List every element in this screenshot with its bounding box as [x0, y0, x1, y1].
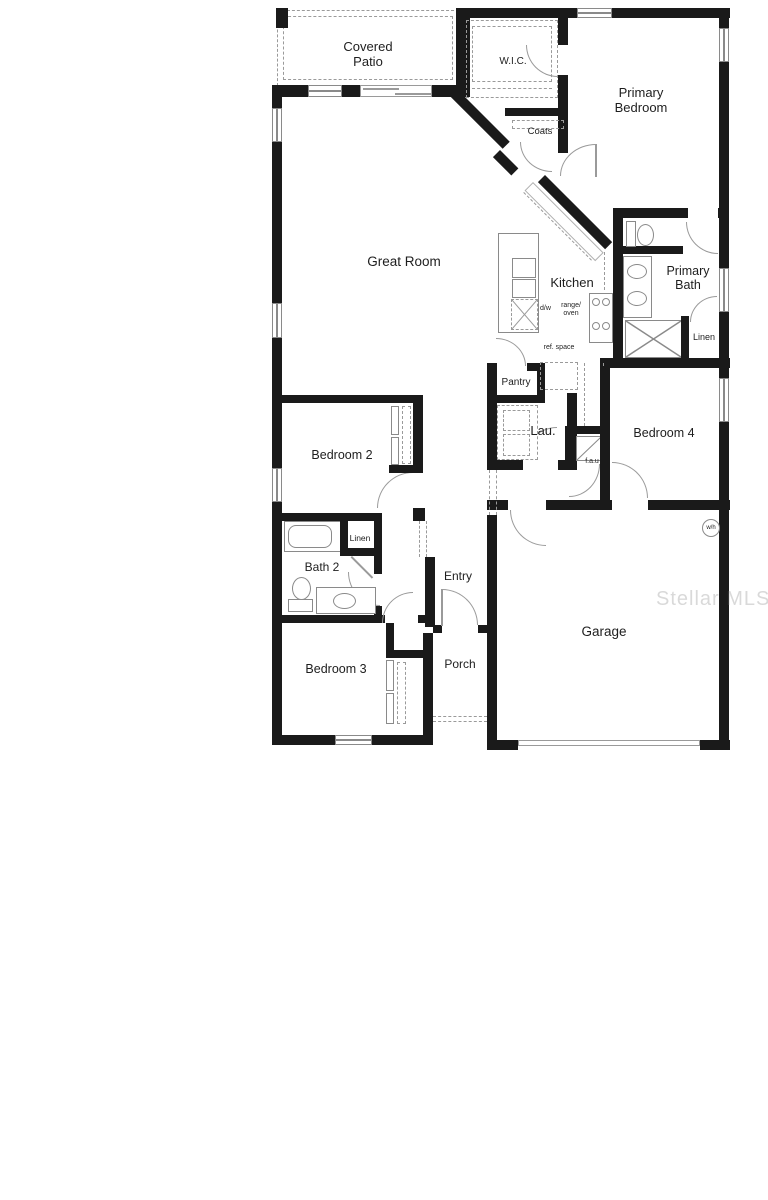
room-label-bedroom4: Bedroom 4 [614, 426, 714, 440]
wall-segment [456, 8, 577, 18]
room-label-entry: Entry [431, 570, 485, 584]
closet-bypass-door [386, 693, 394, 724]
room-label-primary-bath: Primary Bath [657, 264, 719, 293]
wall-segment [700, 740, 730, 750]
window [272, 468, 282, 502]
room-label-kitchen: Kitchen [541, 276, 603, 291]
wall-segment [272, 142, 282, 303]
wall-segment [719, 422, 729, 750]
bedroom4-door-arc [612, 462, 648, 498]
bathtub-basin [288, 525, 332, 548]
room-label-laundry: Lau. [522, 424, 564, 439]
window [308, 85, 342, 97]
wall-segment [613, 216, 623, 358]
room-label-great-room: Great Room [354, 254, 454, 270]
room-label-coats: Coats [518, 127, 562, 138]
wall-segment [272, 502, 282, 745]
burner [592, 322, 600, 330]
garage-door [518, 740, 700, 746]
wall-segment [546, 500, 612, 510]
wall-segment [648, 500, 730, 510]
closet-bypass-door [391, 406, 399, 435]
garage-entry-door-arc [510, 510, 546, 546]
burner [602, 322, 610, 330]
room-label-wic: W.I.C. [490, 56, 536, 68]
window [577, 8, 612, 18]
burner [602, 298, 610, 306]
wall-segment [600, 358, 730, 368]
window [335, 735, 372, 745]
closet-bypass-door [391, 437, 399, 465]
wall-segment [478, 625, 497, 633]
wall-segment [272, 85, 308, 97]
wall-segment-diagonal [493, 150, 518, 175]
room-label-bedroom3: Bedroom 3 [286, 662, 386, 676]
label-range-oven: range/ oven [555, 302, 587, 318]
window [272, 108, 282, 142]
wall-segment [565, 426, 573, 464]
wall-segment [386, 650, 425, 658]
closet-rod [402, 406, 411, 464]
wall-segment [487, 740, 518, 750]
room-label-garage: Garage [559, 624, 649, 640]
pantry-door-arc [496, 338, 526, 366]
toilet-bowl [637, 224, 654, 246]
refrigerator-space [540, 362, 578, 390]
wall-segment [282, 395, 423, 403]
wall-segment [558, 18, 568, 45]
fau-door-arc [569, 464, 600, 497]
wall-segment [623, 246, 683, 254]
room-label-bath2: Bath 2 [292, 561, 352, 575]
closet-bypass-door [386, 660, 394, 691]
front-door-leaf [441, 589, 443, 626]
room-label-pantry: Pantry [494, 377, 538, 389]
wic-rod [472, 88, 552, 89]
wall-segment [374, 513, 382, 574]
sink [333, 593, 356, 609]
island-sink [512, 279, 536, 298]
room-label-covered-patio: Covered Patio [330, 40, 406, 70]
wall-segment [272, 338, 282, 468]
sink [627, 264, 647, 279]
floor-plan-page: w/h Covered Patio W.I.C. Primary Bedroom… [0, 0, 768, 1200]
wall-segment [425, 557, 435, 627]
wall-segment [719, 312, 729, 378]
wall-segment [719, 8, 729, 28]
room-label-linen-primary: Linen [686, 332, 722, 342]
wall-segment [276, 8, 288, 28]
porch-edge-dash [433, 716, 487, 717]
wall-segment [372, 735, 427, 745]
primary-bedroom-door-leaf [595, 144, 597, 177]
toilet [288, 599, 313, 612]
sink [627, 291, 647, 306]
toilet [626, 221, 636, 247]
wall-segment [612, 8, 730, 18]
linen-door-arc [690, 296, 717, 322]
window [719, 268, 729, 312]
wall-segment [282, 513, 382, 521]
coats-door-arc [520, 142, 552, 172]
shower [625, 320, 682, 358]
window [719, 378, 729, 422]
bedroom3-door-arc [382, 592, 413, 623]
wall-segment [272, 735, 335, 745]
water-heater-label: w/h [706, 525, 715, 531]
cased-opening [496, 470, 497, 515]
wall-segment [413, 395, 423, 472]
counter-edge-dash [604, 252, 605, 290]
wall-segment [413, 508, 425, 521]
wall-segment [600, 368, 610, 500]
cased-opening [489, 470, 490, 515]
wall-segment [423, 633, 433, 745]
island-sink [512, 258, 536, 278]
sliding-glass-door [360, 85, 432, 97]
wall-segment [719, 62, 729, 268]
window [272, 303, 282, 338]
primary-bath-door-arc [686, 222, 718, 254]
window [719, 28, 729, 62]
room-label-porch: Porch [432, 658, 488, 672]
dishwasher [511, 299, 538, 330]
bedroom2-door-arc [377, 472, 413, 508]
wall-segment [389, 465, 423, 473]
porch-edge-dash [433, 721, 487, 722]
burner [592, 298, 600, 306]
wall-segment [613, 208, 688, 218]
room-label-bedroom2: Bedroom 2 [292, 448, 392, 462]
wall-segment [505, 108, 567, 116]
closet-rod [397, 662, 406, 724]
water-heater: w/h [702, 519, 720, 537]
front-door-arc [442, 589, 478, 625]
label-fau: f.a.u [578, 458, 606, 466]
cased-opening [419, 521, 420, 557]
wall-segment [342, 85, 360, 97]
label-ref-space: ref. space [541, 344, 577, 352]
room-label-primary-bedroom: Primary Bedroom [596, 86, 686, 116]
wall-segment [433, 625, 442, 633]
wall-segment [487, 500, 508, 510]
cased-opening [426, 521, 427, 557]
cased-opening [584, 363, 585, 426]
room-label-linen-hall: Linen [345, 534, 375, 544]
toilet-bowl [292, 577, 311, 600]
wall-segment [718, 208, 729, 218]
watermark: Stellar MLS [656, 588, 768, 611]
wall-segment [282, 615, 385, 623]
